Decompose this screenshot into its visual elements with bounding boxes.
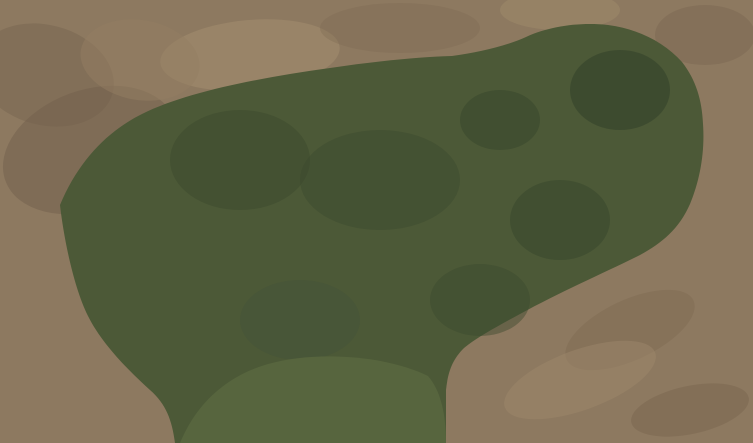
garden-shadow [240,280,360,360]
garden-shadow [300,130,460,230]
garden-shadow [510,180,610,260]
dirt-blotch [320,3,480,53]
aerial-photo-canvas [0,0,753,443]
aerial-photo [0,0,753,443]
garden-shadow [460,90,540,150]
garden-shadow [170,110,310,210]
garden-shadow [430,264,530,336]
garden-shadow [570,50,670,130]
